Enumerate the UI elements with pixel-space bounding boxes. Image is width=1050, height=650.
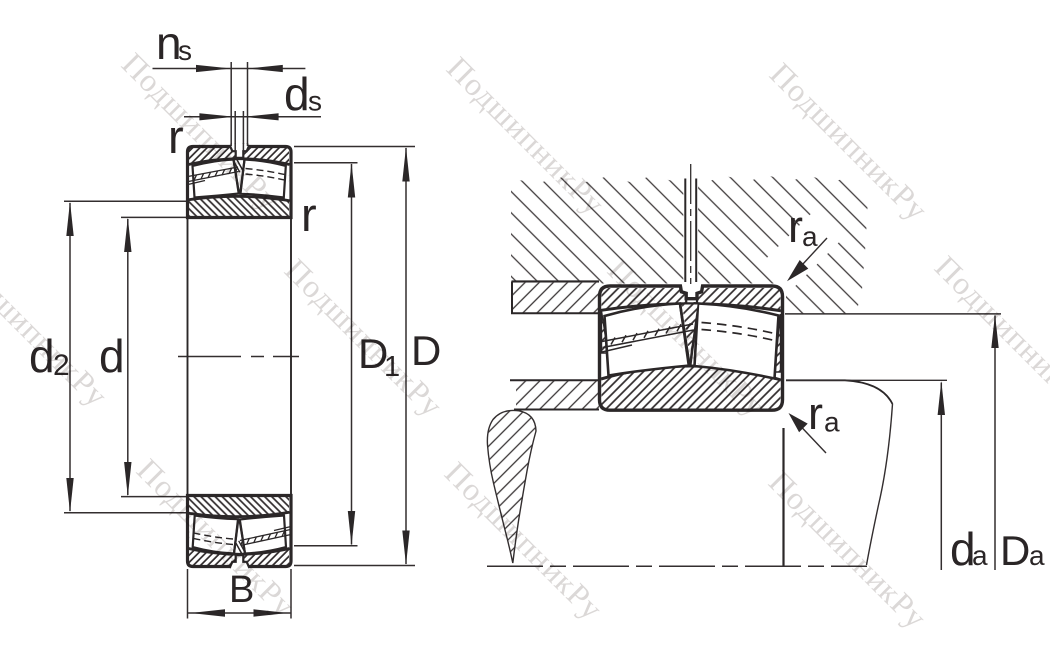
svg-text:d: d <box>284 68 310 120</box>
svg-text:s: s <box>308 86 322 117</box>
svg-text:D: D <box>1000 527 1030 574</box>
svg-text:a: a <box>802 221 818 252</box>
svg-text:a: a <box>824 407 840 438</box>
svg-text:d: d <box>99 330 125 382</box>
svg-text:a: a <box>972 540 988 571</box>
svg-text:r: r <box>301 188 317 241</box>
svg-text:s: s <box>178 35 192 66</box>
svg-text:r: r <box>808 388 823 439</box>
svg-text:r: r <box>788 201 803 252</box>
svg-text:a: a <box>1029 540 1045 571</box>
